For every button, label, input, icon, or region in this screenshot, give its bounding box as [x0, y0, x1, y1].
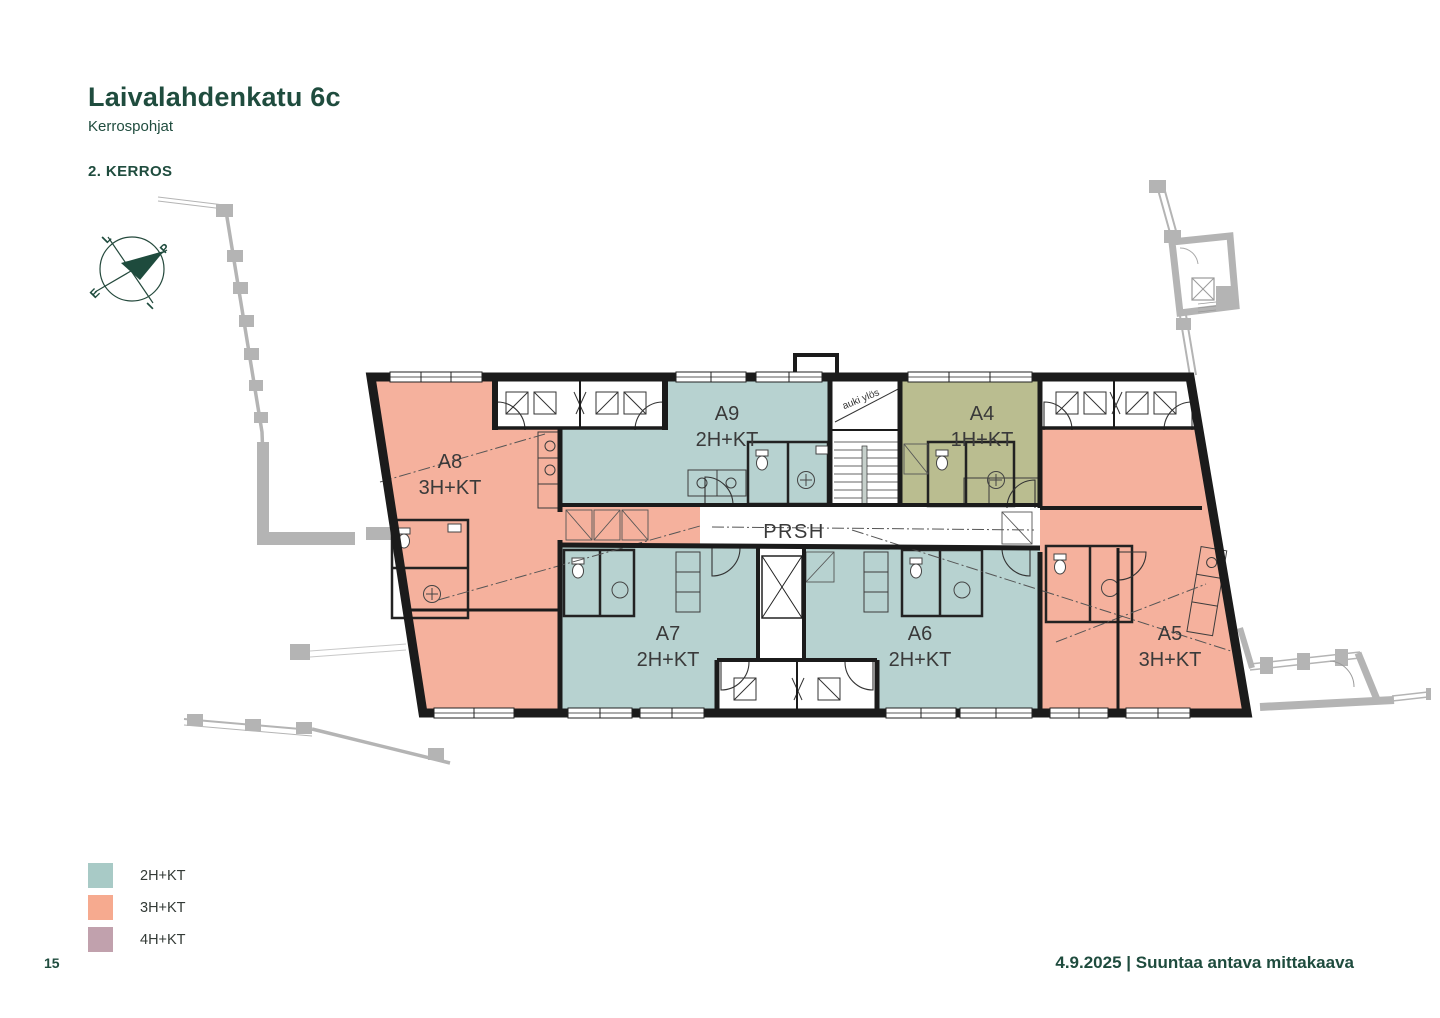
apartment-a8-id: A8	[438, 451, 462, 473]
corridor	[700, 505, 1040, 549]
apartment-a7-id: A7	[656, 623, 680, 645]
elevator	[762, 556, 802, 618]
legend-label-3hkt: 3H+KT	[140, 900, 186, 916]
legend-label-2hkt: 2H+KT	[140, 868, 186, 884]
legend: 2H+KT 3H+KT 4H+KT	[88, 863, 186, 959]
legend-label-4hkt: 4H+KT	[140, 932, 186, 948]
apartment-a5-id: A5	[1158, 623, 1182, 645]
apartment-a6-id: A6	[908, 623, 932, 645]
page-number: 15	[44, 955, 60, 971]
compass: L P E I	[87, 231, 173, 312]
compass-south-label: E	[87, 286, 103, 302]
footer-note: 4.9.2025 | Suuntaa antava mittakaava	[1055, 953, 1354, 973]
apartment-a8-type: 3H+KT	[419, 477, 482, 499]
apartment-a4-id: A4	[970, 403, 994, 425]
neighbor-stairwell	[1149, 180, 1236, 376]
legend-swatch-4hkt	[88, 927, 113, 952]
apartment-a4-type: 1H+KT	[951, 429, 1014, 451]
apartment-a7-type: 2H+KT	[637, 649, 700, 671]
compass-east-label: I	[144, 300, 156, 312]
neighbor-balcony	[1240, 628, 1431, 707]
legend-item-3hkt: 3H+KT	[88, 895, 186, 920]
legend-swatch-3hkt	[88, 895, 113, 920]
compass-needle	[121, 251, 164, 280]
apartment-a9-type: 2H+KT	[696, 429, 759, 451]
floor-plan-canvas: A8 3H+KT A9 2H+KT A4 1H+KT A5 3H+KT A7 2…	[0, 0, 1440, 1018]
apartment-a9-id: A9	[715, 403, 739, 425]
legend-swatch-2hkt	[88, 863, 113, 888]
apartment-a5-type: 3H+KT	[1139, 649, 1202, 671]
legend-item-2hkt: 2H+KT	[88, 863, 186, 888]
legend-item-4hkt: 4H+KT	[88, 927, 186, 952]
apartment-a6-type: 2H+KT	[889, 649, 952, 671]
corridor-label: PRSH	[763, 521, 825, 543]
